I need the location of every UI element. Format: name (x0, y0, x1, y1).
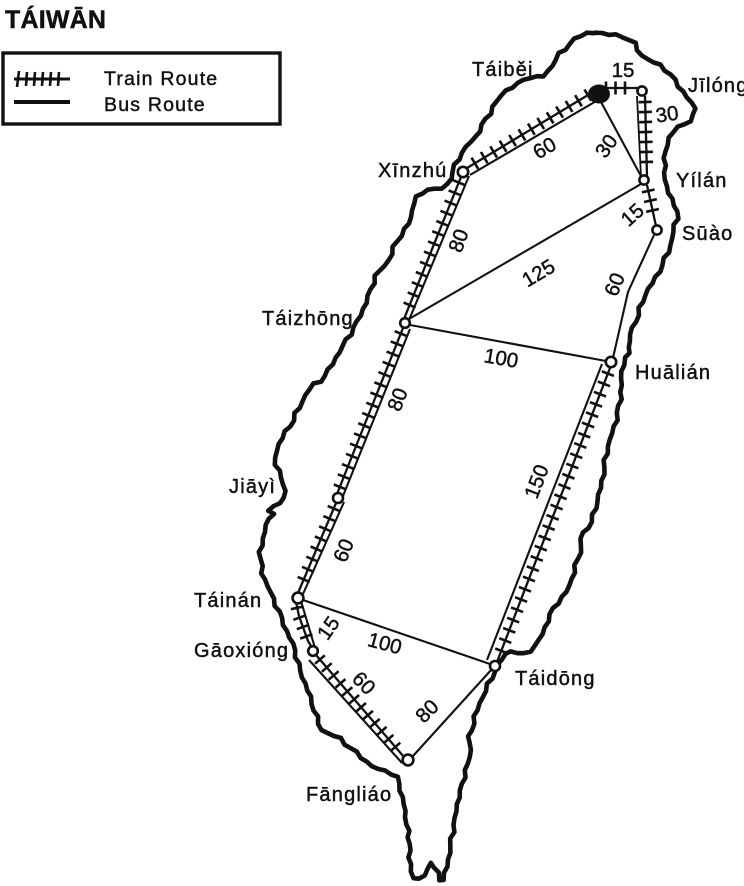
svg-text:Táidōng: Táidōng (515, 668, 596, 690)
svg-text:TÁIWĀN: TÁIWĀN (5, 5, 106, 34)
svg-text:Train Route: Train Route (104, 68, 218, 90)
svg-text:Táinán: Táinán (194, 590, 262, 612)
svg-text:Gāoxióng: Gāoxióng (194, 640, 289, 662)
svg-text:Táiběi: Táiběi (472, 59, 534, 81)
svg-text:Xīnzhú: Xīnzhú (378, 160, 447, 182)
svg-text:Táizhōng: Táizhōng (262, 308, 354, 330)
svg-text:15: 15 (612, 59, 635, 82)
svg-text:Bus Route: Bus Route (104, 94, 206, 116)
svg-text:Huālián: Huālián (635, 362, 711, 384)
svg-text:Sūào: Sūào (682, 223, 734, 245)
svg-text:Jīlóng: Jīlóng (688, 75, 744, 97)
svg-text:Fāngliáo: Fāngliáo (306, 784, 392, 806)
svg-text:Jiāyì: Jiāyì (229, 476, 276, 498)
svg-text:Yílán: Yílán (676, 170, 728, 192)
svg-text:30: 30 (654, 102, 680, 128)
